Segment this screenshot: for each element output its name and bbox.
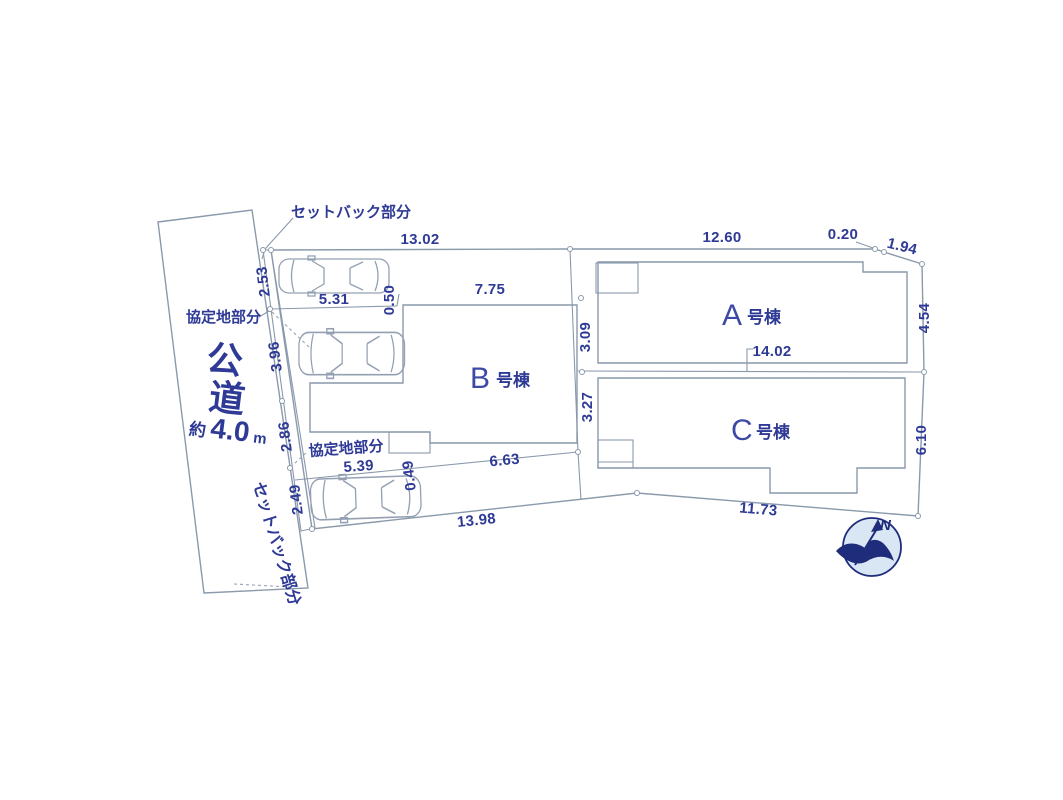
dim-top-jog: 0.20 xyxy=(828,226,858,243)
road-width-value: 4.0 xyxy=(209,412,251,448)
compass-north-label: N xyxy=(880,517,892,534)
building-c-suffix: 号棟 xyxy=(756,422,791,442)
car-icon xyxy=(299,329,405,379)
road-labels: 公 道 約 4.0 m xyxy=(188,336,278,450)
dim-a-width: 14.02 xyxy=(752,343,791,360)
dim-bottom-left: 13.98 xyxy=(456,510,497,531)
dim-right-c: 6.10 xyxy=(913,425,930,455)
building-c-letter: C xyxy=(731,414,753,447)
dim-car-top-width: 5.31 xyxy=(319,291,349,308)
dim-top-left: 13.02 xyxy=(400,231,439,248)
site-plan-canvas: 13.02 12.60 0.20 1.94 2.53 3.96 2.86 2.4… xyxy=(0,0,1063,800)
dim-left-3: 2.86 xyxy=(275,420,296,452)
dim-left-2: 3.96 xyxy=(265,340,286,372)
dim-divider-c: 3.27 xyxy=(579,392,596,422)
road-approx-prefix: 約 xyxy=(188,419,207,441)
dim-bottom-inner-left: 5.39 xyxy=(343,457,375,476)
dim-right-a: 4.54 xyxy=(916,302,933,333)
dim-left-4: 2.49 xyxy=(286,483,307,515)
agreement-label-top: 協定地部分 xyxy=(186,308,261,326)
building-labels: A 号棟 B 号棟 C 号棟 xyxy=(470,299,791,447)
road-name-char1: 公 xyxy=(204,337,245,382)
dim-offset-top: 0.50 xyxy=(381,285,398,315)
road-width-unit: m xyxy=(252,429,267,447)
building-b-suffix: 号棟 xyxy=(496,370,531,390)
dim-bottom-inner-offset: 0.49 xyxy=(399,459,420,491)
site-plan-drawing: 13.02 12.60 0.20 1.94 2.53 3.96 2.86 2.4… xyxy=(0,0,1063,800)
setback-label-top: セットバック部分 xyxy=(291,203,411,221)
compass-icon: N xyxy=(836,517,901,576)
building-b-shape xyxy=(310,305,577,453)
dim-bottom-right: 11.73 xyxy=(739,499,779,519)
dim-b-top-width: 7.75 xyxy=(475,281,505,298)
dim-divider-a: 3.09 xyxy=(577,322,594,352)
car-icon xyxy=(279,256,389,296)
building-b-letter: B xyxy=(470,362,490,395)
building-a-letter: A xyxy=(722,299,742,332)
dim-bottom-inner-right: 6.63 xyxy=(489,451,521,471)
dim-top-diag: 1.94 xyxy=(885,235,919,259)
dim-top-right: 12.60 xyxy=(702,229,741,246)
dim-left-1: 2.53 xyxy=(253,265,274,297)
leader-lines xyxy=(234,218,873,587)
road-width-label: 約 4.0 m xyxy=(188,410,269,450)
building-a-suffix: 号棟 xyxy=(747,307,782,327)
